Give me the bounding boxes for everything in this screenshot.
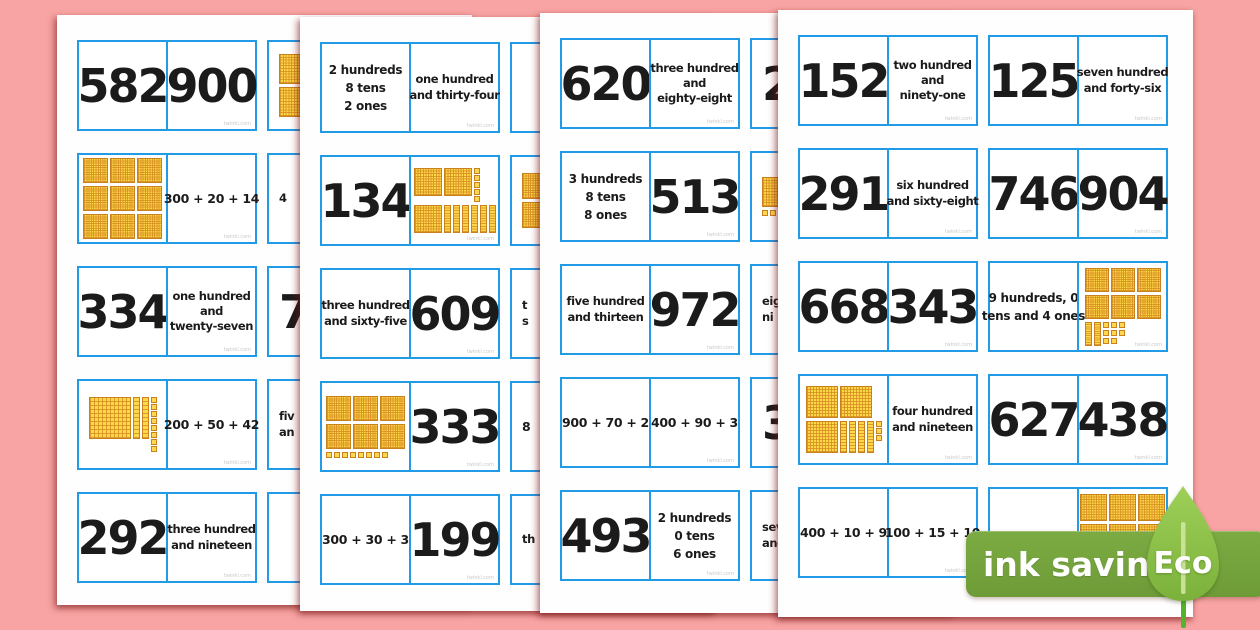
text-line: and xyxy=(921,73,944,88)
card-half-number: 904 xyxy=(1077,150,1166,237)
place-value-text: 2 hundreds8 tens2 ones xyxy=(329,61,403,115)
one-cube-icon xyxy=(1111,338,1117,344)
text-line: 8 ones xyxy=(584,206,627,224)
card-half-number: 292 xyxy=(79,494,166,581)
hundred-block-icon xyxy=(1111,268,1135,292)
ten-rod-icon xyxy=(1094,322,1101,346)
text-line: five hundred xyxy=(567,294,645,309)
hundred-block-icon xyxy=(1080,494,1107,521)
number-words-text: ts xyxy=(522,298,528,328)
text-line: eighty-eight xyxy=(657,91,732,106)
text-line: three hundred xyxy=(321,298,409,313)
card-half-blocks xyxy=(79,381,166,468)
text-line: six hundred xyxy=(896,178,968,193)
one-cube-icon xyxy=(151,446,157,452)
number-text: 438 xyxy=(1077,397,1167,443)
text-line: 2 hundreds xyxy=(329,61,403,79)
card-half-number: 620 xyxy=(562,40,649,127)
hundred-block-icon xyxy=(83,186,108,211)
ten-rod-icon xyxy=(133,397,140,439)
number-words-text: six hundredand sixty-eight xyxy=(887,178,979,208)
watermark-text: twinkl.com xyxy=(467,462,494,468)
hundred-block-icon xyxy=(444,168,472,196)
text-line: and thirteen xyxy=(568,310,644,325)
number-words-text: two hundredandninety-one xyxy=(893,58,971,104)
number-text: 904 xyxy=(1077,171,1167,217)
card-half-expanded: 400 + 90 + 3 xyxy=(649,379,738,466)
matching-card: 4932 hundreds0 tens6 onestwinkl.com xyxy=(560,490,740,581)
card-half-expanded: 300 + 20 + 14 xyxy=(166,155,255,242)
card-half-number: 609 xyxy=(409,270,498,357)
hundred-block-icon xyxy=(1085,268,1109,292)
text-line: and nineteen xyxy=(171,538,252,553)
text-line: fiv xyxy=(279,409,294,424)
watermark-text: twinkl.com xyxy=(224,460,251,466)
blocks-row xyxy=(1085,268,1161,292)
watermark-text: twinkl.com xyxy=(707,571,734,577)
card-half-words: three hundredand nineteen xyxy=(166,494,255,581)
text-line: 9 hundreds, 0 xyxy=(989,289,1079,307)
text-line: twenty-seven xyxy=(170,319,253,334)
text-line: and xyxy=(683,76,706,91)
expanded-form-text: 300 + 30 + 3 xyxy=(322,532,409,547)
ten-rod-icon xyxy=(462,205,469,233)
text-line: th xyxy=(522,532,535,547)
blocks-row xyxy=(414,168,480,202)
blocks-row xyxy=(83,186,162,211)
number-words-text: 4 xyxy=(279,191,287,206)
ten-rod-icon xyxy=(142,397,149,439)
card-half-words: five hundredand thirteen xyxy=(562,266,649,353)
number-text: 513 xyxy=(649,174,739,220)
text-line: one hundred xyxy=(172,289,250,304)
one-cube-icon xyxy=(151,432,157,438)
text-line: 6 ones xyxy=(673,545,716,563)
matching-card: 334one hundredandtwenty-seventwinkl.com xyxy=(77,266,257,357)
hundred-block-icon xyxy=(353,396,378,421)
hundred-block-icon xyxy=(83,214,108,239)
card-half-blocks xyxy=(800,376,887,463)
watermark-text: twinkl.com xyxy=(707,458,734,464)
text-line: t xyxy=(522,298,527,313)
card-half-number: 343 xyxy=(887,263,976,350)
card-half-number: 627 xyxy=(990,376,1077,463)
blocks-row xyxy=(806,421,882,453)
card-half-words: three hundredand sixty-five xyxy=(322,270,409,357)
ten-rod-icon xyxy=(1085,322,1092,346)
card-half-expanded: 300 + 30 + 3 xyxy=(322,496,409,583)
card-half-blocks xyxy=(409,157,498,244)
card-half-expanded: 900 + 70 + 2 xyxy=(562,379,649,466)
one-cube-icon xyxy=(342,452,348,458)
number-text: 125 xyxy=(988,58,1078,104)
number-words-text: fivan xyxy=(279,409,294,439)
text-line: an xyxy=(279,425,294,440)
card-half-number: 513 xyxy=(649,153,738,240)
one-cube-icon xyxy=(1119,330,1125,336)
number-text: 291 xyxy=(798,171,888,217)
hundred-block-icon xyxy=(110,214,135,239)
hundred-block-icon xyxy=(326,396,351,421)
blocks-row xyxy=(89,397,157,452)
card-half-number: 199 xyxy=(409,496,498,583)
ones-group xyxy=(1103,322,1125,344)
text-line: 2 ones xyxy=(344,97,387,115)
matching-card: 125seven hundredand forty-sixtwinkl.com xyxy=(988,35,1168,126)
watermark-text: twinkl.com xyxy=(707,119,734,125)
ten-rod-icon xyxy=(867,421,874,453)
text-line: 3 hundreds xyxy=(569,170,643,188)
card-half-number: 668 xyxy=(800,263,887,350)
number-text: 746 xyxy=(988,171,1078,217)
card-half-blocks xyxy=(322,383,409,470)
watermark-text: twinkl.com xyxy=(467,349,494,355)
base-ten-blocks xyxy=(806,386,882,453)
watermark-text: twinkl.com xyxy=(707,345,734,351)
expanded-form-text: 200 + 50 + 42 xyxy=(164,417,259,432)
hundred-block-icon xyxy=(110,186,135,211)
text-line: 2 hundreds xyxy=(658,509,732,527)
card-half-place-value: 2 hundreds8 tens2 ones xyxy=(322,44,409,131)
card-half-words: one hundredandtwenty-seven xyxy=(166,268,255,355)
blocks-row xyxy=(326,452,388,458)
text-line: four hundred xyxy=(892,404,972,419)
number-text: 292 xyxy=(77,515,167,561)
text-line: tens and 4 ones xyxy=(982,307,1085,325)
matching-card: 668343twinkl.com xyxy=(798,261,978,352)
card-half-words: four hundredand nineteen xyxy=(887,376,976,463)
one-cube-icon xyxy=(382,452,388,458)
matching-card: 746904twinkl.com xyxy=(988,148,1168,239)
number-text: 134 xyxy=(320,178,410,224)
ten-rod-icon xyxy=(840,421,847,453)
card-half-number: 134 xyxy=(322,157,409,244)
worksheet-preview: 582900twinkl.com300 + 20 + 14twinkl.com3… xyxy=(0,0,1260,630)
blocks-row xyxy=(1085,295,1161,319)
ten-rod-icon xyxy=(480,205,487,233)
one-cube-icon xyxy=(1119,322,1125,328)
card-half-number: 125 xyxy=(990,37,1077,124)
matching-card: 152two hundredandninety-onetwinkl.com xyxy=(798,35,978,126)
text-line: 8 tens xyxy=(585,188,625,206)
hundred-block-icon xyxy=(1111,295,1135,319)
text-line: ninety-one xyxy=(900,88,966,103)
one-cube-icon xyxy=(876,435,882,441)
card-half-number: 333 xyxy=(409,383,498,470)
blocks-row xyxy=(83,158,162,183)
matching-card: three hundredand sixty-five609twinkl.com xyxy=(320,268,500,359)
matching-card: 291six hundredand sixty-eighttwinkl.com xyxy=(798,148,978,239)
card-half-number: 438 xyxy=(1077,376,1166,463)
blocks-row xyxy=(83,214,162,239)
hundred-block-icon xyxy=(83,158,108,183)
watermark-text: twinkl.com xyxy=(467,123,494,129)
number-text: 900 xyxy=(166,63,256,109)
blocks-row xyxy=(806,386,872,418)
ten-rod-icon xyxy=(453,205,460,233)
ten-rod-icon xyxy=(849,421,856,453)
number-text: 627 xyxy=(988,397,1078,443)
hundred-block-icon xyxy=(414,168,442,196)
matching-card: 300 + 30 + 3199twinkl.com xyxy=(320,494,500,585)
matching-card: 333twinkl.com xyxy=(320,381,500,472)
number-text: 334 xyxy=(77,289,167,335)
ink-saving-label: ink saving xyxy=(966,545,1173,584)
one-cube-icon xyxy=(876,428,882,434)
text-line: 8 tens xyxy=(345,79,385,97)
one-cube-icon xyxy=(474,182,480,188)
hundred-block-icon xyxy=(840,386,872,418)
matching-card: 134twinkl.com xyxy=(320,155,500,246)
card-half-number: 493 xyxy=(562,492,649,579)
one-cube-icon xyxy=(770,210,776,216)
watermark-text: twinkl.com xyxy=(945,342,972,348)
watermark-text: twinkl.com xyxy=(224,347,251,353)
one-cube-icon xyxy=(151,397,157,403)
one-cube-icon xyxy=(151,411,157,417)
one-cube-icon xyxy=(876,421,882,427)
text-line: and sixty-five xyxy=(324,314,407,329)
hundred-block-icon xyxy=(1137,295,1161,319)
number-words-text: four hundredand nineteen xyxy=(892,404,973,434)
eco-label: Eco xyxy=(1147,546,1219,581)
card-half-place-value: 9 hundreds, 0tens and 4 ones xyxy=(990,263,1077,350)
number-text: 620 xyxy=(560,61,650,107)
eco-leaf-icon xyxy=(1147,484,1219,602)
ones-group xyxy=(151,397,157,452)
watermark-text: twinkl.com xyxy=(224,234,251,240)
matching-card: four hundredand nineteentwinkl.com xyxy=(798,374,978,465)
blocks-row xyxy=(326,424,405,449)
expanded-form-text: 8 xyxy=(522,419,530,434)
matching-card: 627438twinkl.com xyxy=(988,374,1168,465)
number-text: 972 xyxy=(649,287,739,333)
base-ten-blocks xyxy=(1085,268,1161,346)
one-cube-icon xyxy=(358,452,364,458)
hundred-block-icon xyxy=(806,386,838,418)
hundred-block-icon xyxy=(137,214,162,239)
one-cube-icon xyxy=(1103,338,1109,344)
hundred-block-icon xyxy=(353,424,378,449)
ones-group xyxy=(762,210,776,216)
one-cube-icon xyxy=(151,418,157,424)
card-half-blocks xyxy=(1077,263,1166,350)
watermark-text: twinkl.com xyxy=(467,236,494,242)
matching-card: 300 + 20 + 14twinkl.com xyxy=(77,153,257,244)
one-cube-icon xyxy=(474,175,480,181)
number-words-text: three hundredand nineteen xyxy=(167,522,255,552)
number-text: 582 xyxy=(77,63,167,109)
expanded-form-text: 300 + 20 + 14 xyxy=(164,191,259,206)
matching-card: 900 + 70 + 2400 + 90 + 3twinkl.com xyxy=(560,377,740,468)
hundred-block-icon xyxy=(1137,268,1161,292)
one-cube-icon xyxy=(1103,322,1109,328)
matching-card: 292three hundredand nineteentwinkl.com xyxy=(77,492,257,583)
card-half-number: 900 xyxy=(166,42,255,129)
card-half-number: 582 xyxy=(79,42,166,129)
ones-group xyxy=(326,452,388,458)
text-line: ni xyxy=(762,310,773,325)
number-text: 609 xyxy=(409,291,499,337)
watermark-text: twinkl.com xyxy=(467,575,494,581)
one-cube-icon xyxy=(1103,330,1109,336)
watermark-text: twinkl.com xyxy=(945,116,972,122)
text-line: three hundred xyxy=(167,522,255,537)
worksheet-page: 152two hundredandninety-onetwinkl.com291… xyxy=(778,10,1193,617)
hundred-block-icon xyxy=(110,158,135,183)
one-cube-icon xyxy=(1111,330,1117,336)
text-line: three hundred xyxy=(650,61,738,76)
text-line: 0 tens xyxy=(674,527,714,545)
ones-group xyxy=(876,421,882,441)
text-line: and xyxy=(200,304,223,319)
matching-card: five hundredand thirteen972twinkl.com xyxy=(560,264,740,355)
hundred-block-icon xyxy=(806,421,838,453)
expanded-form-text: 400 + 90 + 3 xyxy=(651,415,738,430)
one-cube-icon xyxy=(366,452,372,458)
expanded-form-text: 900 + 70 + 2 xyxy=(562,415,649,430)
blocks-row xyxy=(326,396,405,421)
one-cube-icon xyxy=(326,452,332,458)
ten-rod-icon xyxy=(471,205,478,233)
card-half-words: six hundredand sixty-eight xyxy=(887,150,976,237)
text-line: two hundred xyxy=(893,58,971,73)
one-cube-icon xyxy=(1111,322,1117,328)
ten-rod-icon xyxy=(489,205,496,233)
hundred-block-icon xyxy=(137,158,162,183)
one-cube-icon xyxy=(151,404,157,410)
matching-card: 3 hundreds8 tens8 ones513twinkl.com xyxy=(560,151,740,242)
card-half-place-value: 3 hundreds8 tens8 ones xyxy=(562,153,649,240)
card-half-place-value: 2 hundreds0 tens6 ones xyxy=(649,492,738,579)
card-half-number: 291 xyxy=(800,150,887,237)
matching-card: 400 + 10 + 9100 + 15 + 10twinkl.com xyxy=(798,487,978,578)
number-words-text: th xyxy=(522,532,535,547)
text-line: seven hundred xyxy=(1077,65,1168,80)
hundred-block-icon xyxy=(414,205,442,233)
hundred-block-icon xyxy=(326,424,351,449)
card-half-number: 152 xyxy=(800,37,887,124)
watermark-text: twinkl.com xyxy=(1135,116,1162,122)
number-words-text: three hundredand sixty-five xyxy=(321,298,409,328)
watermark-text: twinkl.com xyxy=(224,573,251,579)
number-words-text: three hundredandeighty-eight xyxy=(650,61,738,107)
watermark-text: twinkl.com xyxy=(1135,342,1162,348)
ten-rod-icon xyxy=(858,421,865,453)
card-half-expanded: 100 + 15 + 10 xyxy=(887,489,976,576)
card-half-expanded: 200 + 50 + 42 xyxy=(166,381,255,468)
text-line: 4 xyxy=(279,191,287,206)
number-text: 199 xyxy=(409,517,499,563)
watermark-text: twinkl.com xyxy=(224,121,251,127)
place-value-text: 9 hundreds, 0tens and 4 ones xyxy=(982,289,1085,325)
number-text: 668 xyxy=(798,284,888,330)
one-cube-icon xyxy=(474,196,480,202)
hundred-block-icon xyxy=(380,396,405,421)
one-cube-icon xyxy=(151,439,157,445)
one-cube-icon xyxy=(762,210,768,216)
card-half-words: seven hundredand forty-six xyxy=(1077,37,1166,124)
matching-card: 200 + 50 + 42twinkl.com xyxy=(77,379,257,470)
base-ten-blocks xyxy=(414,168,496,233)
one-cube-icon xyxy=(151,425,157,431)
one-cube-icon xyxy=(334,452,340,458)
ones-group xyxy=(474,168,480,202)
text-line: and nineteen xyxy=(892,420,973,435)
number-words-text: one hundredand thirty-four xyxy=(410,72,500,102)
base-ten-blocks xyxy=(83,158,162,239)
base-ten-blocks xyxy=(89,397,157,452)
hundred-block-icon xyxy=(380,424,405,449)
text-line: s xyxy=(522,314,528,329)
card-half-number: 746 xyxy=(990,150,1077,237)
hundred-block-icon xyxy=(137,186,162,211)
number-words-text: one hundredandtwenty-seven xyxy=(170,289,253,335)
watermark-text: twinkl.com xyxy=(945,229,972,235)
number-text: 152 xyxy=(798,58,888,104)
matching-card: 620three hundredandeighty-eighttwinkl.co… xyxy=(560,38,740,129)
blocks-row xyxy=(1085,322,1125,346)
blocks-row xyxy=(762,210,776,216)
card-half-number: 334 xyxy=(79,268,166,355)
text-line: and thirty-four xyxy=(410,88,500,103)
matching-card: 582900twinkl.com xyxy=(77,40,257,131)
place-value-text: 2 hundreds0 tens6 ones xyxy=(658,509,732,563)
hundred-block-icon xyxy=(1109,494,1136,521)
one-cube-icon xyxy=(474,168,480,174)
base-ten-blocks xyxy=(326,396,405,458)
one-cube-icon xyxy=(350,452,356,458)
one-cube-icon xyxy=(374,452,380,458)
hundred-block-icon xyxy=(89,397,131,439)
card-half-blocks xyxy=(79,155,166,242)
watermark-text: twinkl.com xyxy=(1135,229,1162,235)
text-line: one hundred xyxy=(416,72,494,87)
expanded-form-text: 400 + 10 + 9 xyxy=(800,525,887,540)
text-line: and sixty-eight xyxy=(887,194,979,209)
number-text: 343 xyxy=(887,284,977,330)
number-text: 493 xyxy=(560,513,650,559)
card-half-number: 972 xyxy=(649,266,738,353)
matching-card: 9 hundreds, 0tens and 4 onestwinkl.com xyxy=(988,261,1168,352)
number-words-text: seven hundredand forty-six xyxy=(1077,65,1168,95)
card-half-words: three hundredandeighty-eight xyxy=(649,40,738,127)
watermark-text: twinkl.com xyxy=(707,232,734,238)
card-half-expanded: 400 + 10 + 9 xyxy=(800,489,887,576)
watermark-text: twinkl.com xyxy=(945,455,972,461)
card-half-words: two hundredandninety-one xyxy=(887,37,976,124)
blocks-row xyxy=(414,205,496,233)
card-half-words: one hundredand thirty-four xyxy=(409,44,498,131)
text-line: and forty-six xyxy=(1084,81,1162,96)
ten-rod-icon xyxy=(444,205,451,233)
number-words-text: five hundredand thirteen xyxy=(567,294,645,324)
number-text: 333 xyxy=(409,404,499,450)
one-cube-icon xyxy=(474,189,480,195)
place-value-text: 3 hundreds8 tens8 ones xyxy=(569,170,643,224)
hundred-block-icon xyxy=(1085,295,1109,319)
matching-card: 2 hundreds8 tens2 onesone hundredand thi… xyxy=(320,42,500,133)
watermark-text: twinkl.com xyxy=(1135,455,1162,461)
